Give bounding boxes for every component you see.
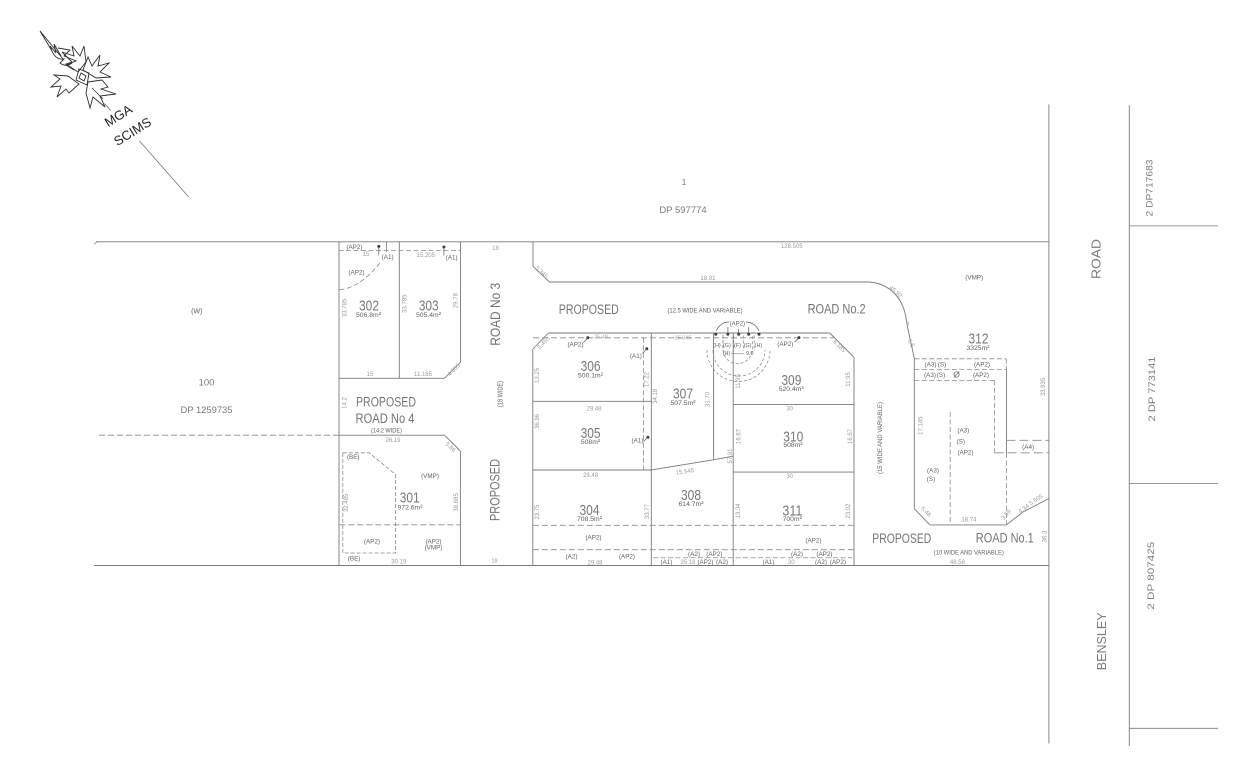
svg-text:(A1): (A1) — [382, 254, 394, 261]
svg-text:(AP2): (AP2) — [364, 538, 380, 545]
svg-text:DP 1259735: DP 1259735 — [181, 405, 233, 416]
svg-text:(G): (G) — [723, 343, 731, 349]
svg-text:(VMP): (VMP) — [425, 545, 443, 552]
svg-text:(18 WIDE): (18 WIDE) — [497, 381, 504, 407]
svg-text:18.74: 18.74 — [961, 518, 977, 524]
svg-text:11.95: 11.95 — [846, 372, 852, 387]
svg-text:3325m²: 3325m² — [966, 345, 990, 352]
svg-text:33.77: 33.77 — [645, 503, 651, 519]
svg-text:(S): (S) — [927, 476, 935, 483]
svg-text:15: 15 — [367, 372, 374, 378]
svg-text:PROPOSED: PROPOSED — [559, 302, 619, 317]
svg-text:30.19: 30.19 — [391, 559, 407, 565]
svg-text:13.34: 13.34 — [736, 503, 742, 519]
svg-text:972.6m²: 972.6m² — [398, 504, 424, 511]
svg-text:ROAD No.2: ROAD No.2 — [808, 302, 866, 317]
svg-text:(A3): (A3) — [925, 361, 937, 368]
svg-text:(A3): (A3) — [957, 427, 969, 434]
svg-text:32.485: 32.485 — [344, 493, 350, 512]
svg-text:30: 30 — [786, 407, 793, 413]
svg-text:15: 15 — [363, 252, 370, 258]
svg-text:(A2): (A2) — [688, 551, 700, 558]
svg-text:9.0: 9.0 — [746, 351, 754, 357]
svg-text:(VMP): (VMP) — [965, 275, 983, 282]
svg-text:33.785: 33.785 — [342, 298, 348, 317]
svg-text:PROPOSED: PROPOSED — [487, 459, 502, 521]
svg-text:2 DP717683: 2 DP717683 — [1145, 160, 1156, 217]
svg-text:(A2): (A2) — [716, 559, 728, 566]
svg-text:(H): (H) — [723, 351, 731, 357]
svg-text:16.67: 16.67 — [848, 428, 854, 444]
svg-text:29.78: 29.78 — [454, 292, 460, 308]
svg-text:(S): (S) — [957, 438, 965, 445]
svg-text:(AP2): (AP2) — [816, 551, 832, 558]
svg-text:(AP2): (AP2) — [777, 341, 793, 348]
svg-text:505.4m²: 505.4m² — [416, 312, 442, 319]
svg-text:(AP2): (AP2) — [730, 321, 745, 327]
svg-text:508m²: 508m² — [581, 439, 601, 446]
svg-text:(AP2): (AP2) — [348, 269, 364, 276]
svg-text:500.1m²: 500.1m² — [578, 373, 604, 380]
svg-text:BENSLEY: BENSLEY — [1094, 612, 1109, 670]
svg-text:(A2): (A2) — [815, 559, 827, 566]
svg-text:48.58: 48.58 — [950, 560, 966, 566]
svg-text:11.185: 11.185 — [414, 372, 433, 378]
svg-text:100: 100 — [199, 378, 215, 389]
svg-text:(A1): (A1) — [661, 559, 673, 566]
svg-text:35.345: 35.345 — [675, 335, 692, 341]
svg-text:(S): (S) — [938, 361, 946, 368]
svg-text:(AP2): (AP2) — [805, 537, 821, 544]
svg-text:14.2: 14.2 — [343, 397, 349, 409]
svg-text:PROPOSED: PROPOSED — [356, 394, 416, 409]
svg-text:708.5m²: 708.5m² — [577, 516, 603, 523]
svg-text:508m²: 508m² — [783, 442, 803, 449]
svg-text:25.48: 25.48 — [594, 335, 608, 341]
svg-text:29.48: 29.48 — [586, 407, 602, 413]
svg-text:30: 30 — [786, 474, 793, 480]
svg-text:31.70: 31.70 — [705, 391, 711, 407]
svg-text:(A2): (A2) — [566, 553, 578, 560]
svg-text:(A1): (A1) — [446, 255, 458, 262]
svg-text:2 DP 807425: 2 DP 807425 — [1146, 542, 1157, 610]
svg-text:506.8m²: 506.8m² — [356, 312, 382, 319]
svg-text:26.19: 26.19 — [385, 438, 401, 444]
svg-text:ROAD: ROAD — [1088, 239, 1103, 279]
svg-text:(G): (G) — [744, 343, 752, 349]
svg-text:(AP2): (AP2) — [346, 244, 362, 251]
svg-text:(AP2): (AP2) — [585, 534, 601, 541]
svg-text:(AP2): (AP2) — [567, 341, 583, 348]
svg-text:ROAD No.1: ROAD No.1 — [976, 530, 1034, 545]
svg-text:507.5m²: 507.5m² — [671, 400, 697, 407]
svg-text:(10 WIDE AND VARIABLE): (10 WIDE AND VARIABLE) — [934, 550, 1004, 557]
svg-text:(S): (S) — [937, 372, 945, 379]
svg-text:15.205: 15.205 — [417, 253, 436, 259]
svg-text:(A1): (A1) — [630, 353, 642, 360]
svg-text:18: 18 — [492, 246, 499, 252]
svg-text:1: 1 — [682, 177, 687, 187]
svg-text:(AP2): (AP2) — [697, 559, 713, 566]
svg-text:23.02: 23.02 — [846, 503, 852, 519]
svg-text:614.7m²: 614.7m² — [679, 501, 705, 508]
svg-text:23.75: 23.75 — [535, 504, 541, 520]
svg-text:(A3): (A3) — [927, 467, 939, 474]
svg-text:(14.2 WIDE): (14.2 WIDE) — [371, 428, 402, 435]
svg-text:ROAD No 4: ROAD No 4 — [356, 411, 415, 426]
svg-text:520.4m²: 520.4m² — [779, 386, 805, 393]
svg-text:ROAD No 3: ROAD No 3 — [488, 283, 503, 346]
svg-text:(W): (W) — [191, 309, 202, 316]
svg-text:(AP2): (AP2) — [974, 361, 990, 368]
svg-text:17.22: 17.22 — [645, 371, 651, 387]
svg-text:3: 3 — [906, 321, 909, 327]
svg-text:(A1): (A1) — [763, 559, 775, 566]
svg-text:29.48: 29.48 — [583, 473, 599, 479]
svg-text:18: 18 — [491, 558, 497, 564]
svg-text:(AP2): (AP2) — [957, 449, 973, 456]
svg-text:(AP2): (AP2) — [706, 551, 722, 558]
svg-text:(A2): (A2) — [791, 551, 803, 558]
svg-text:(AP2): (AP2) — [619, 553, 635, 560]
svg-text:13.25: 13.25 — [535, 367, 541, 383]
svg-text:38.685: 38.685 — [454, 493, 460, 512]
svg-text:34.18: 34.18 — [653, 388, 659, 404]
svg-text:128.505: 128.505 — [781, 244, 803, 250]
svg-text:17.145: 17.145 — [918, 416, 924, 435]
svg-text:(A3): (A3) — [924, 372, 936, 379]
svg-text:2 DP 773141: 2 DP 773141 — [1147, 357, 1158, 422]
svg-text:11.95: 11.95 — [736, 374, 742, 389]
svg-text:(F): (F) — [734, 343, 741, 349]
svg-text:35.18: 35.18 — [680, 560, 696, 566]
svg-text:33.785: 33.785 — [403, 294, 409, 313]
svg-text:Ø: Ø — [953, 370, 960, 380]
svg-text:(H): (H) — [755, 343, 763, 349]
svg-text:18.91: 18.91 — [700, 276, 716, 282]
svg-text:33.935: 33.935 — [1041, 377, 1047, 396]
svg-text:700m²: 700m² — [783, 516, 803, 523]
svg-text:(AP2): (AP2) — [830, 559, 846, 566]
svg-text:(H): (H) — [713, 343, 721, 349]
svg-text:(BE): (BE) — [348, 555, 361, 562]
svg-text:36.96: 36.96 — [535, 413, 541, 429]
svg-text:(A1): (A1) — [632, 438, 644, 445]
svg-text:(12.5 WIDE AND VARIABLE): (12.5 WIDE AND VARIABLE) — [668, 308, 743, 315]
svg-text:(VMP): (VMP) — [421, 473, 439, 480]
svg-text:(15 WIDE AND VARIABLE): (15 WIDE AND VARIABLE) — [877, 402, 884, 474]
svg-text:PROPOSED: PROPOSED — [872, 531, 931, 546]
svg-text:DP 597774: DP 597774 — [659, 205, 706, 216]
svg-text:16.67: 16.67 — [736, 428, 742, 444]
svg-text:36.3: 36.3 — [1043, 530, 1049, 542]
svg-text:(AP2): (AP2) — [973, 372, 989, 379]
svg-text:(A4): (A4) — [1022, 444, 1034, 451]
svg-text:30: 30 — [788, 560, 795, 566]
svg-text:(BE): (BE) — [347, 454, 360, 461]
svg-text:29.48: 29.48 — [587, 560, 603, 566]
